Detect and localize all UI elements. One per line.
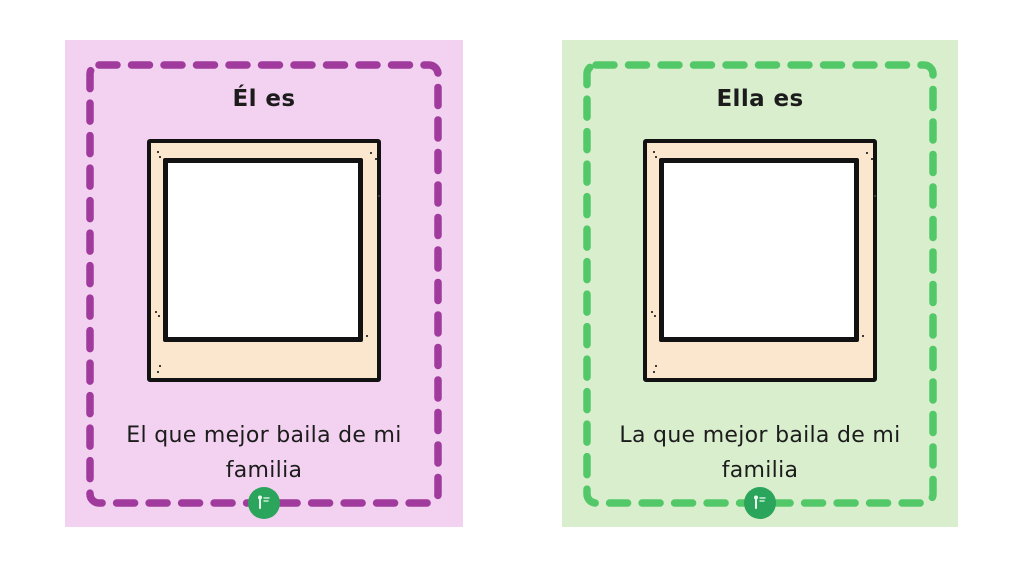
card-caption: El que mejor baila de mi familia (65, 418, 463, 488)
caption-line: familia (65, 453, 463, 488)
card-el: Él es El que mejor baila de mi familia (65, 40, 463, 527)
card-caption: La que mejor baila de mi familia (562, 418, 958, 488)
brand-logo (744, 487, 776, 519)
polaroid-frame (643, 139, 877, 382)
caption-line: familia (562, 453, 958, 488)
brand-logo (248, 487, 280, 519)
frame-specks (151, 143, 153, 145)
caption-line: El que mejor baila de mi (65, 418, 463, 453)
brand-logo-icon (255, 494, 273, 512)
card-ella: Ella es La que mejor baila de mi familia (562, 40, 958, 527)
polaroid-frame (147, 139, 381, 382)
card-title: Ella es (562, 86, 958, 112)
page-canvas: Él es El que mejor baila de mi familia E… (0, 0, 1024, 576)
photo-placeholder (163, 158, 363, 342)
brand-logo-icon (751, 494, 769, 512)
photo-placeholder (659, 158, 859, 342)
frame-specks (647, 143, 649, 145)
card-title: Él es (65, 86, 463, 112)
caption-line: La que mejor baila de mi (562, 418, 958, 453)
